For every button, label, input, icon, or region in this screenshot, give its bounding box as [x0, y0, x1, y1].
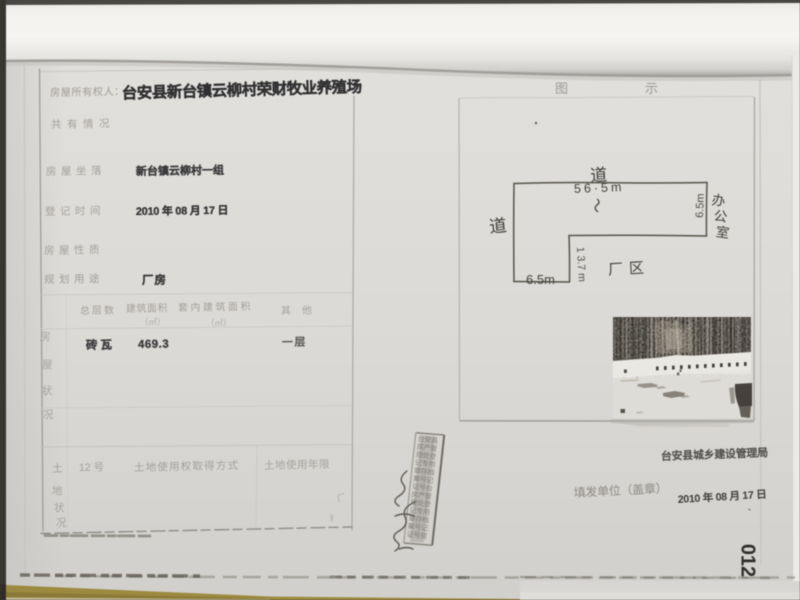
- svg-text:‖: ‖: [330, 513, 334, 523]
- svg-text:办: 办: [711, 192, 726, 209]
- svg-text:地: 地: [52, 484, 63, 497]
- svg-text:（㎡）: （㎡）: [140, 317, 166, 327]
- svg-text:1 3.7 m: 1 3.7 m: [574, 247, 588, 283]
- svg-text:房屋性质: 房屋性质: [44, 243, 104, 257]
- svg-text:图: 图: [555, 81, 568, 96]
- svg-text:总层数: 总层数: [80, 303, 116, 317]
- svg-text:登记时间: 登记时间: [45, 204, 105, 218]
- svg-text:56·5m: 56·5m: [574, 180, 625, 196]
- svg-text:469.3: 469.3: [138, 338, 169, 351]
- svg-text:土地使用年限: 土地使用年限: [264, 458, 330, 472]
- svg-text:6.5m: 6.5m: [694, 193, 707, 218]
- svg-text:6.5m: 6.5m: [526, 272, 555, 287]
- svg-text:12 号: 12 号: [79, 462, 104, 474]
- svg-text:道: 道: [488, 215, 507, 237]
- svg-text:示: 示: [645, 81, 658, 96]
- svg-text:（㎡）: （㎡）: [206, 318, 232, 328]
- svg-text:公: 公: [713, 208, 729, 225]
- svg-text:建筑面积: 建筑面积: [126, 301, 168, 315]
- svg-text:况: 况: [56, 517, 67, 529]
- svg-text:况: 况: [43, 409, 54, 421]
- svg-text:室: 室: [715, 223, 731, 241]
- svg-text:屋: 屋: [42, 359, 53, 371]
- svg-text:2010 年 08 月 17 日: 2010 年 08 月 17 日: [136, 203, 228, 218]
- svg-text:012: 012: [737, 544, 759, 577]
- svg-text:共有情况: 共有情况: [51, 117, 115, 131]
- svg-text:厂区: 厂区: [608, 260, 651, 279]
- svg-text:新台镇云柳村一组: 新台镇云柳村一组: [136, 163, 224, 178]
- svg-text:一层: 一层: [282, 336, 307, 349]
- svg-text:状: 状: [54, 501, 65, 514]
- svg-text:房: 房: [40, 330, 51, 343]
- svg-text:规划用途: 规划用途: [44, 272, 104, 286]
- svg-text:土地使用权取得方式: 土地使用权取得方式: [134, 459, 240, 474]
- svg-text:土: 土: [52, 462, 63, 475]
- svg-text:套内建筑面积: 套内建筑面积: [178, 300, 253, 314]
- svg-text:状: 状: [42, 384, 53, 397]
- svg-text:厂房: 厂房: [142, 273, 167, 287]
- svg-text:房屋所有权人：: 房屋所有权人：: [50, 85, 125, 99]
- svg-text:砖瓦: 砖瓦: [86, 337, 115, 352]
- svg-text:房屋坐落: 房屋坐落: [46, 164, 106, 178]
- svg-text:其他: 其他: [281, 303, 323, 317]
